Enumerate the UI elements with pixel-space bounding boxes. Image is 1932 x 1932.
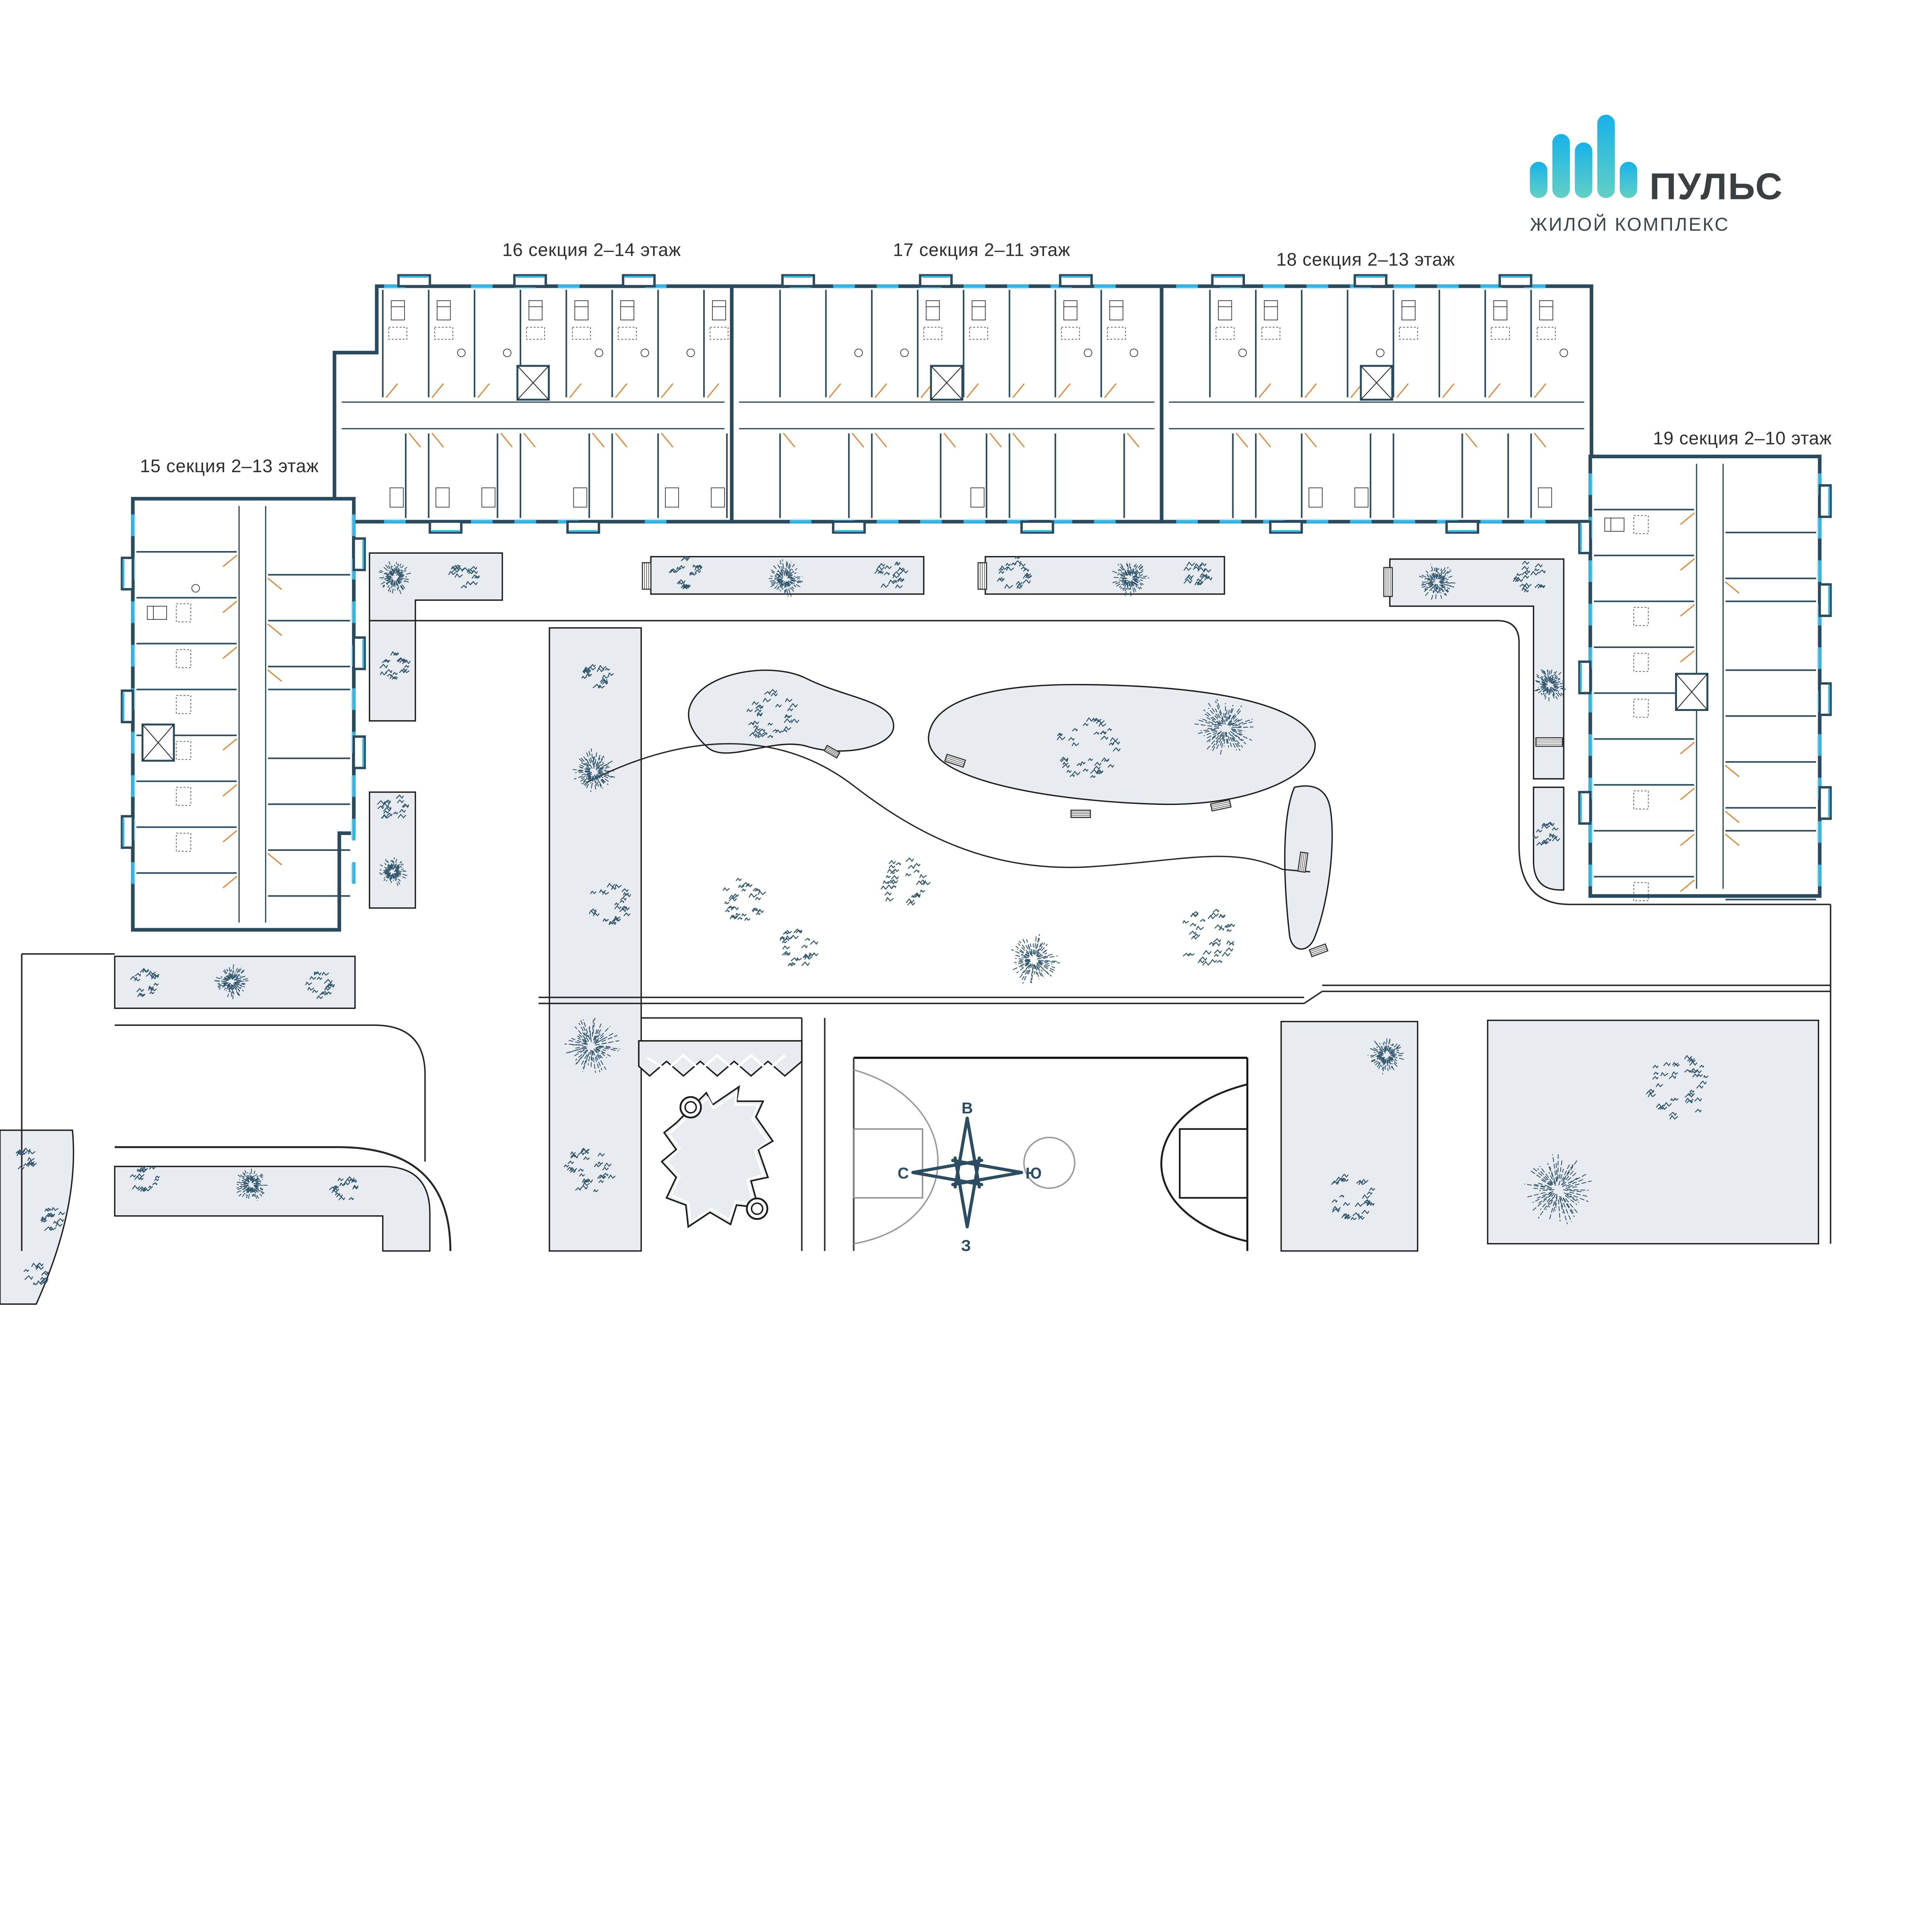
three-point-arc <box>1161 1084 1247 1241</box>
basketball-key <box>1180 1129 1247 1198</box>
bush-icon <box>723 878 766 920</box>
logo-title: ПУЛЬС <box>1650 165 1784 207</box>
pulse-bars-icon <box>1530 115 1637 198</box>
garden-blob <box>929 685 1315 804</box>
bench-icon <box>978 563 986 589</box>
section-19-building[interactable] <box>1580 456 1831 901</box>
logo-subtitle: ЖИЛОЙ КОМПЛЕКС <box>1530 214 1730 235</box>
lawn-area <box>1281 1022 1418 1251</box>
master-plan-svg: В С Ю З 15 секция 2–13 этаж 16 секция 2–… <box>0 0 1932 1364</box>
lawn-strip <box>369 792 415 908</box>
compass-west-label: З <box>961 1237 971 1255</box>
penalty-arc <box>854 1070 938 1244</box>
section-15-building[interactable] <box>122 499 365 930</box>
lawn-corner <box>0 1130 73 1304</box>
walkway <box>115 1025 425 1162</box>
bush-icon <box>1183 909 1235 965</box>
bench-icon <box>1071 810 1090 818</box>
stair-core <box>143 724 174 761</box>
bench-icon <box>1310 944 1328 957</box>
section-16-label[interactable]: 16 секция 2–14 этаж <box>502 240 681 260</box>
bush-icon <box>881 858 930 905</box>
goal-box <box>854 1129 922 1198</box>
bench-icon <box>1384 568 1392 597</box>
lawn-strip <box>115 1167 430 1251</box>
stair-core <box>1676 674 1708 710</box>
compass-rose: В С Ю З <box>898 1099 1042 1254</box>
section-15-label[interactable]: 15 секция 2–13 этаж <box>140 456 319 476</box>
section-17-building[interactable] <box>732 276 1162 533</box>
garden-blob <box>689 670 894 753</box>
playground-ring <box>747 1199 767 1219</box>
lawn-column <box>549 628 641 1251</box>
compass-east-label: В <box>961 1099 973 1117</box>
garden-blob <box>1285 786 1332 949</box>
compass-north-label: С <box>898 1164 909 1182</box>
stair-core <box>1361 366 1392 400</box>
bush-icon <box>780 929 818 966</box>
compass-south-label: Ю <box>1026 1164 1042 1182</box>
stair-core <box>517 366 549 400</box>
section-16-building[interactable] <box>335 276 742 533</box>
site-plan-page: В С Ю З 15 секция 2–13 этаж 16 секция 2–… <box>0 0 1932 1364</box>
stair-core <box>931 366 962 400</box>
compass-star-icon <box>913 1118 1022 1227</box>
tree-icon <box>1011 934 1060 984</box>
section-19-label[interactable]: 19 секция 2–10 этаж <box>1653 428 1832 448</box>
sports-area <box>639 1041 1247 1251</box>
section-18-label[interactable]: 18 секция 2–13 этаж <box>1276 250 1455 270</box>
bench-icon <box>1536 738 1563 746</box>
playground-ring <box>680 1097 701 1117</box>
bench-icon <box>643 563 651 589</box>
section-18-building[interactable] <box>1162 276 1592 533</box>
lawn-area <box>1488 1020 1818 1244</box>
section-17-label[interactable]: 17 секция 2–11 этаж <box>893 240 1070 260</box>
logo: ПУЛЬС ЖИЛОЙ КОМПЛЕКС <box>1530 115 1783 235</box>
